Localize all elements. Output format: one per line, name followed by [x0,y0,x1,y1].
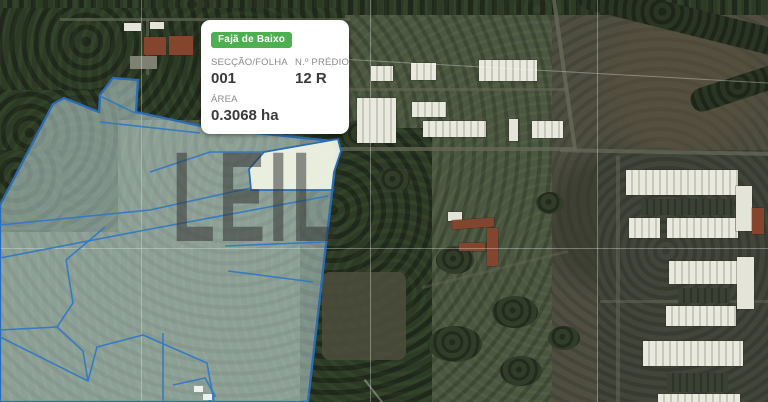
tree-clump [428,326,482,362]
building [479,60,537,81]
field-patch [322,272,406,360]
parking-lot [130,56,157,69]
road [340,88,568,91]
building [487,228,498,266]
field-value-section: 001 [211,70,295,87]
building [423,121,486,137]
building [737,257,754,309]
forest-right-of-parcels [300,128,432,402]
building [459,243,485,251]
building [532,121,563,138]
building [626,170,738,195]
building [678,288,730,303]
building [629,218,660,238]
parcel-info-popup: Fajã de Baixo SECÇÃO/FOLHA N.º PRÉDIO 00… [201,20,349,134]
map-canvas[interactable]: LEIL Fajã de Baixo SECÇÃO/FOLHA N.º PRÉD… [0,0,768,402]
building [509,119,518,141]
tree-clump [500,356,542,386]
tree-clump [492,296,538,328]
building [643,341,743,366]
road [330,147,576,151]
building [658,394,740,402]
tree-clump [378,168,410,192]
tree-clump [548,326,580,350]
building [411,63,436,80]
building [669,261,740,284]
building [144,37,166,55]
forest-left-lower [0,150,62,230]
building [752,208,764,234]
building [666,306,736,326]
building [667,373,728,392]
road [616,156,620,402]
building [641,199,734,215]
popup-fields: SECÇÃO/FOLHA N.º PRÉDIO 001 12 R ÁREA 0.… [211,57,339,124]
building [150,22,164,29]
field-label-section: SECÇÃO/FOLHA [211,57,295,68]
building [667,218,738,238]
region-badge: Fajã de Baixo [211,32,292,48]
building [736,186,752,231]
field-label-area: ÁREA [211,94,349,105]
field-value-area: 0.3068 ha [211,107,349,124]
tree-clump [536,192,564,214]
field-value-predio: 12 R [295,70,349,87]
building [124,23,141,31]
building [357,98,396,143]
building [169,36,193,55]
building [371,66,393,81]
field-label-predio: N.º PRÉDIO [295,57,349,68]
building [412,102,446,117]
